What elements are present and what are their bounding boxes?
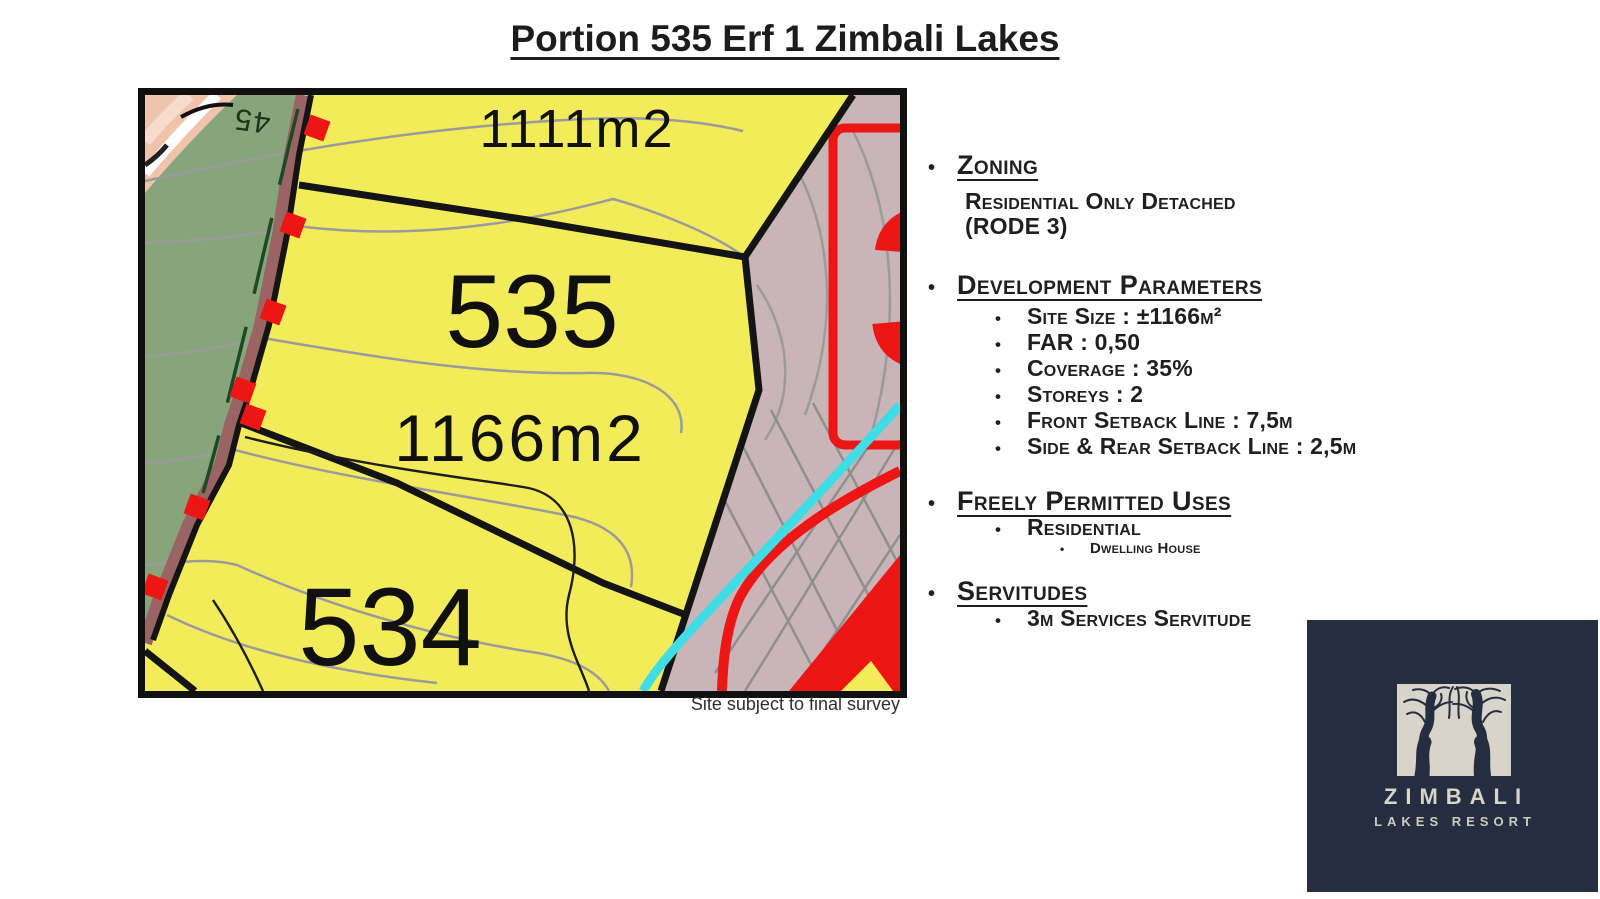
section-heading-development-parameters: • Development Parameters: [915, 270, 1262, 301]
bullet-icon: •: [928, 157, 957, 180]
bullet-icon: •: [928, 277, 957, 300]
parameter-far: • FAR : 0,50: [915, 329, 1140, 356]
tree-emblem-icon: [1397, 684, 1511, 776]
logo-wordmark: ZIMBALI: [1307, 784, 1598, 810]
bullet-icon: •: [995, 387, 1027, 407]
bullet-icon: •: [995, 413, 1027, 433]
parameter-front-setback: • Front Setback Line : 7,5m: [915, 407, 1293, 434]
plot-main-number-label: 535: [445, 254, 619, 370]
bullet-icon: •: [995, 611, 1027, 631]
plot-bottom-number-label: 534: [298, 566, 482, 689]
site-plan-svg: 3 45: [145, 95, 900, 691]
section-heading-servitudes: • Servitudes: [915, 576, 1087, 607]
slide-page: Portion 535 Erf 1 Zimbali Lakes: [0, 0, 1600, 899]
section-heading-zoning: • Zoning: [915, 150, 1038, 181]
info-panel: • Zoning Residential Only Detached (RODE…: [915, 150, 1395, 670]
plot-main-area-label: 1166m2: [394, 401, 646, 475]
plot-top-area-label: 1111m2: [479, 99, 674, 159]
bullet-icon: •: [995, 439, 1027, 459]
contour-elevation-label: 45: [231, 101, 273, 139]
parameter-site-size: • Site Size : ±1166m²: [915, 303, 1222, 330]
logo-subtitle: LAKES RESORT: [1307, 814, 1598, 829]
section-heading-freely-permitted-uses: • Freely Permitted Uses: [915, 486, 1231, 517]
servitude-services: • 3m Services Servitude: [915, 605, 1251, 632]
bullet-icon: •: [995, 361, 1027, 381]
bullet-icon: •: [928, 583, 957, 606]
parameter-side-rear-setback: • Side & Rear Setback Line : 2,5m: [915, 433, 1356, 460]
parameter-coverage: • Coverage : 35%: [915, 355, 1193, 382]
bullet-icon: •: [1060, 542, 1090, 556]
bullet-icon: •: [995, 335, 1027, 355]
zimbali-lakes-resort-logo: ZIMBALI LAKES RESORT: [1307, 620, 1598, 892]
bullet-icon: •: [995, 520, 1027, 540]
heading-text: Development Parameters: [957, 270, 1262, 301]
use-residential: • Residential: [915, 514, 1141, 541]
page-title: Portion 535 Erf 1 Zimbali Lakes: [0, 18, 1570, 60]
site-plan-map: 3 45: [138, 88, 907, 698]
bullet-icon: •: [928, 493, 957, 516]
zoning-line-2: (RODE 3): [915, 213, 1068, 240]
parameter-storeys: • Storeys : 2: [915, 381, 1143, 408]
zoning-line-1: Residential Only Detached: [915, 188, 1236, 215]
heading-text: Servitudes: [957, 576, 1087, 607]
bullet-icon: •: [995, 309, 1027, 329]
map-caption: Site subject to final survey: [145, 694, 900, 715]
use-dwelling-house: • Dwelling House: [915, 540, 1201, 557]
heading-text: Freely Permitted Uses: [957, 486, 1231, 517]
heading-text: Zoning: [957, 150, 1038, 181]
adjacent-plot-number: 3: [867, 159, 900, 416]
